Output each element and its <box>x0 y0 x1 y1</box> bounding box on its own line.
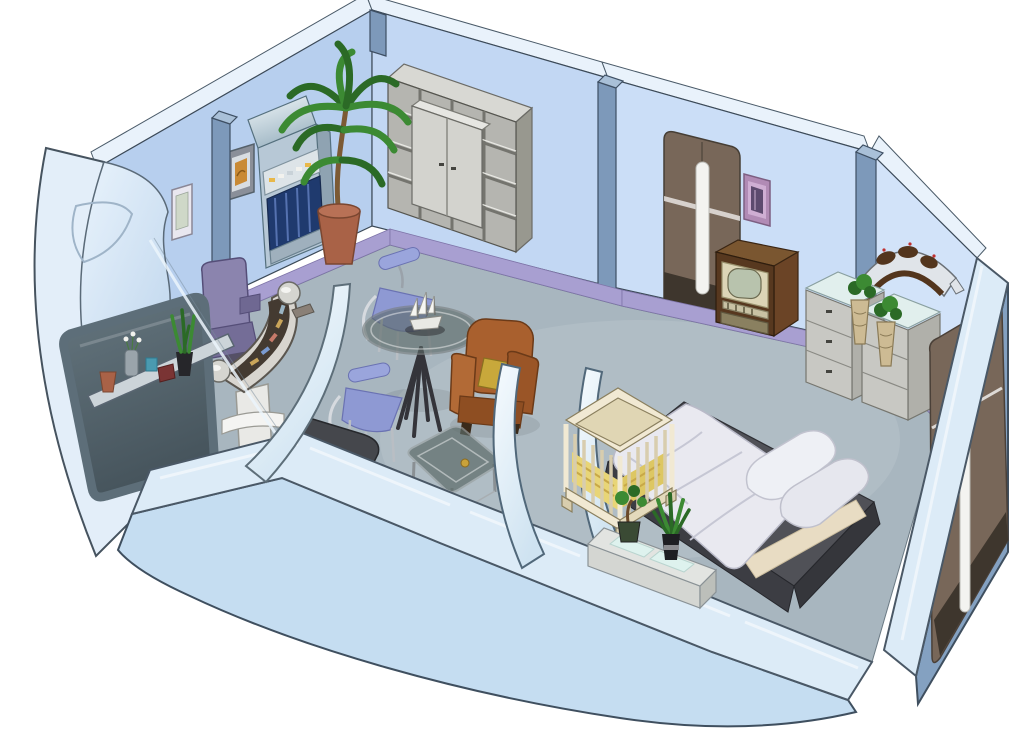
cup <box>146 358 157 371</box>
snake-plant-pot <box>176 352 193 376</box>
tv-screen <box>728 268 761 299</box>
dresser-front <box>806 290 852 400</box>
pillar <box>598 82 616 298</box>
bonsai-foliage <box>637 497 647 507</box>
batleth-stud <box>882 248 885 251</box>
flower-vase <box>125 350 138 376</box>
desk-end-cap <box>278 282 300 304</box>
cap-highlight <box>281 287 291 293</box>
purple-artwork <box>744 174 770 226</box>
aloe-pot-band <box>664 545 679 550</box>
picture-art <box>176 192 188 230</box>
batleth-stud <box>908 242 911 245</box>
door-handle <box>696 162 709 294</box>
retro-tv-cabinet <box>716 240 798 336</box>
illustration-stage <box>0 0 1014 729</box>
room-cutaway-illustration <box>0 0 1014 729</box>
batleth-hole <box>898 246 918 258</box>
bonsai-foliage <box>615 491 629 505</box>
cabinet-handle <box>439 163 444 166</box>
drawer-handle <box>826 370 832 373</box>
bonsai-foliage <box>628 485 640 497</box>
pillar-corner <box>370 10 386 56</box>
table-trinket <box>461 459 469 467</box>
batleth-stud <box>932 254 935 257</box>
chair-armrest <box>240 294 260 314</box>
drawer-handle <box>826 340 832 343</box>
drawer-handle <box>826 310 832 313</box>
shelf-side <box>516 108 532 252</box>
small-picture-frame <box>172 184 192 240</box>
picture-art <box>751 186 763 214</box>
bonsai-pot <box>618 522 640 542</box>
small-pot <box>100 372 116 392</box>
plant-pot-rim <box>318 204 360 218</box>
plant-pot <box>318 212 360 264</box>
orange-picture-frame <box>228 144 254 200</box>
cabinet-handle <box>451 167 456 170</box>
